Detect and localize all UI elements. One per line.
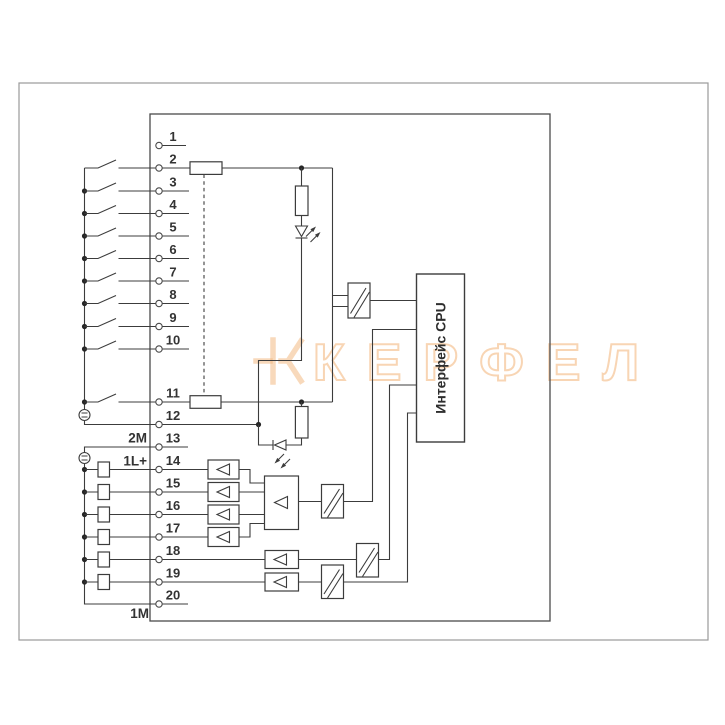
terminal-circle [156,399,162,405]
terminal-circle [156,534,162,540]
terminal-number: 1 [169,129,176,144]
switch-contact-icon [85,183,156,191]
load-branches [85,462,156,590]
resistor-icon [190,162,222,175]
power-supply-icon [79,410,90,421]
watermark-text: КЕРФЕЛ [313,334,661,392]
terminal-number: 3 [169,175,176,190]
terminal-circle [156,300,162,306]
output-driver-icon [208,505,239,524]
isolation-barrier-icon [357,544,379,578]
label-1l-plus: 1L+ [123,454,147,469]
switch-contact-icon [85,319,156,327]
led-icon [296,226,321,242]
terminal-3: 3 [156,175,189,195]
watermark: КЕРФЕЛ [256,334,661,392]
power-supply-icon [79,453,90,464]
terminal-circle [156,466,162,472]
terminal-8: 8 [156,287,189,307]
label-1m: 1M [130,606,149,621]
terminal-7: 7 [156,265,189,285]
terminal-number: 6 [169,242,176,257]
resistor-icon [190,396,221,409]
terminal-number: 10 [166,333,180,348]
resistor-icon [295,186,308,216]
terminal-circle [156,323,162,329]
terminal-4: 4 [156,197,189,217]
terminal-circle [156,489,162,495]
switch-contact-icon [85,206,156,214]
terminal-number: 20 [166,588,180,603]
switch-contact-icon [85,341,156,349]
terminal-circle [156,278,162,284]
do-load-bus [79,447,156,604]
switch-contact-icon [85,394,156,402]
terminal-15: 15 [156,476,208,496]
terminal-circle [156,579,162,585]
terminal-number: 4 [169,197,177,212]
terminal-13: 13 [156,431,188,451]
terminal-circle [156,556,162,562]
terminal-12: 12 [156,408,259,428]
load-resistor-icon [98,575,110,590]
terminal-number: 11 [166,386,180,401]
terminal-number: 19 [166,566,180,581]
terminal-16: 16 [156,498,208,518]
terminal-number: 12 [166,408,180,423]
led-icon [273,440,290,469]
wiring-diagram: КЕРФЕЛ [0,0,725,725]
terminal-number: 16 [166,498,180,513]
load-resistor-icon [98,485,110,500]
input-switches [85,160,156,402]
terminal-circle [156,601,162,607]
terminal-circle [156,142,162,148]
switch-contact-icon [85,296,156,304]
di-channel-bottom [162,396,333,469]
terminal-number: 8 [169,287,176,302]
load-resistor-icon [98,552,110,567]
terminal-number: 13 [166,431,180,446]
load-resistor-icon [98,462,110,477]
terminal-circle [156,210,162,216]
terminal-circle [156,421,162,427]
terminal-number: 7 [169,265,176,280]
terminal-circle [156,188,162,194]
terminal-row: 1 2 3 4 5 6 7 8 9 10 11 12 13 14 15 16 1… [156,129,265,607]
output-driver-icon [265,476,299,530]
terminal-number: 5 [169,220,176,235]
output-driver-icon [265,551,299,569]
terminal-9: 9 [156,310,189,330]
terminal-circle [156,444,162,450]
terminal-circle [156,511,162,517]
terminal-number: 2 [169,152,176,167]
do-channel-18 [265,385,417,577]
terminal-17: 17 [156,521,208,541]
terminal-20: 20 [156,588,188,608]
terminal-19: 19 [156,566,265,586]
output-driver-icon [208,528,239,547]
output-driver-icon [208,460,239,479]
output-driver-icon [265,573,299,591]
switch-contact-icon [85,160,156,168]
terminal-10: 10 [156,333,189,353]
isolation-barrier-icon [322,565,344,599]
switch-contact-icon [85,251,156,259]
di-common-bus [79,168,156,425]
terminal-6: 6 [156,242,189,262]
terminal-14: 14 [156,453,208,473]
load-resistor-icon [98,507,110,522]
terminal-number: 15 [166,476,180,491]
schematic-page: КЕРФЕЛ [0,0,725,725]
terminal-circle [156,233,162,239]
resistor-icon [295,407,308,439]
terminal-circle [156,255,162,261]
switch-contact-icon [85,228,156,236]
terminal-number: 14 [166,453,181,468]
isolation-barrier-icon [348,283,370,318]
terminal-number: 9 [169,310,176,325]
load-resistor-icon [98,530,110,545]
terminal-1: 1 [156,129,186,149]
cpu-interface-label: Интерфейс CPU [433,302,449,413]
isolation-barrier-icon [322,485,344,519]
terminal-5: 5 [156,220,189,240]
terminal-circle [156,165,162,171]
output-driver-icon [208,483,239,502]
terminal-number: 17 [166,521,180,536]
terminal-circle [156,346,162,352]
terminal-number: 18 [166,543,180,558]
label-2m: 2M [128,431,147,446]
switch-contact-icon [85,273,156,281]
